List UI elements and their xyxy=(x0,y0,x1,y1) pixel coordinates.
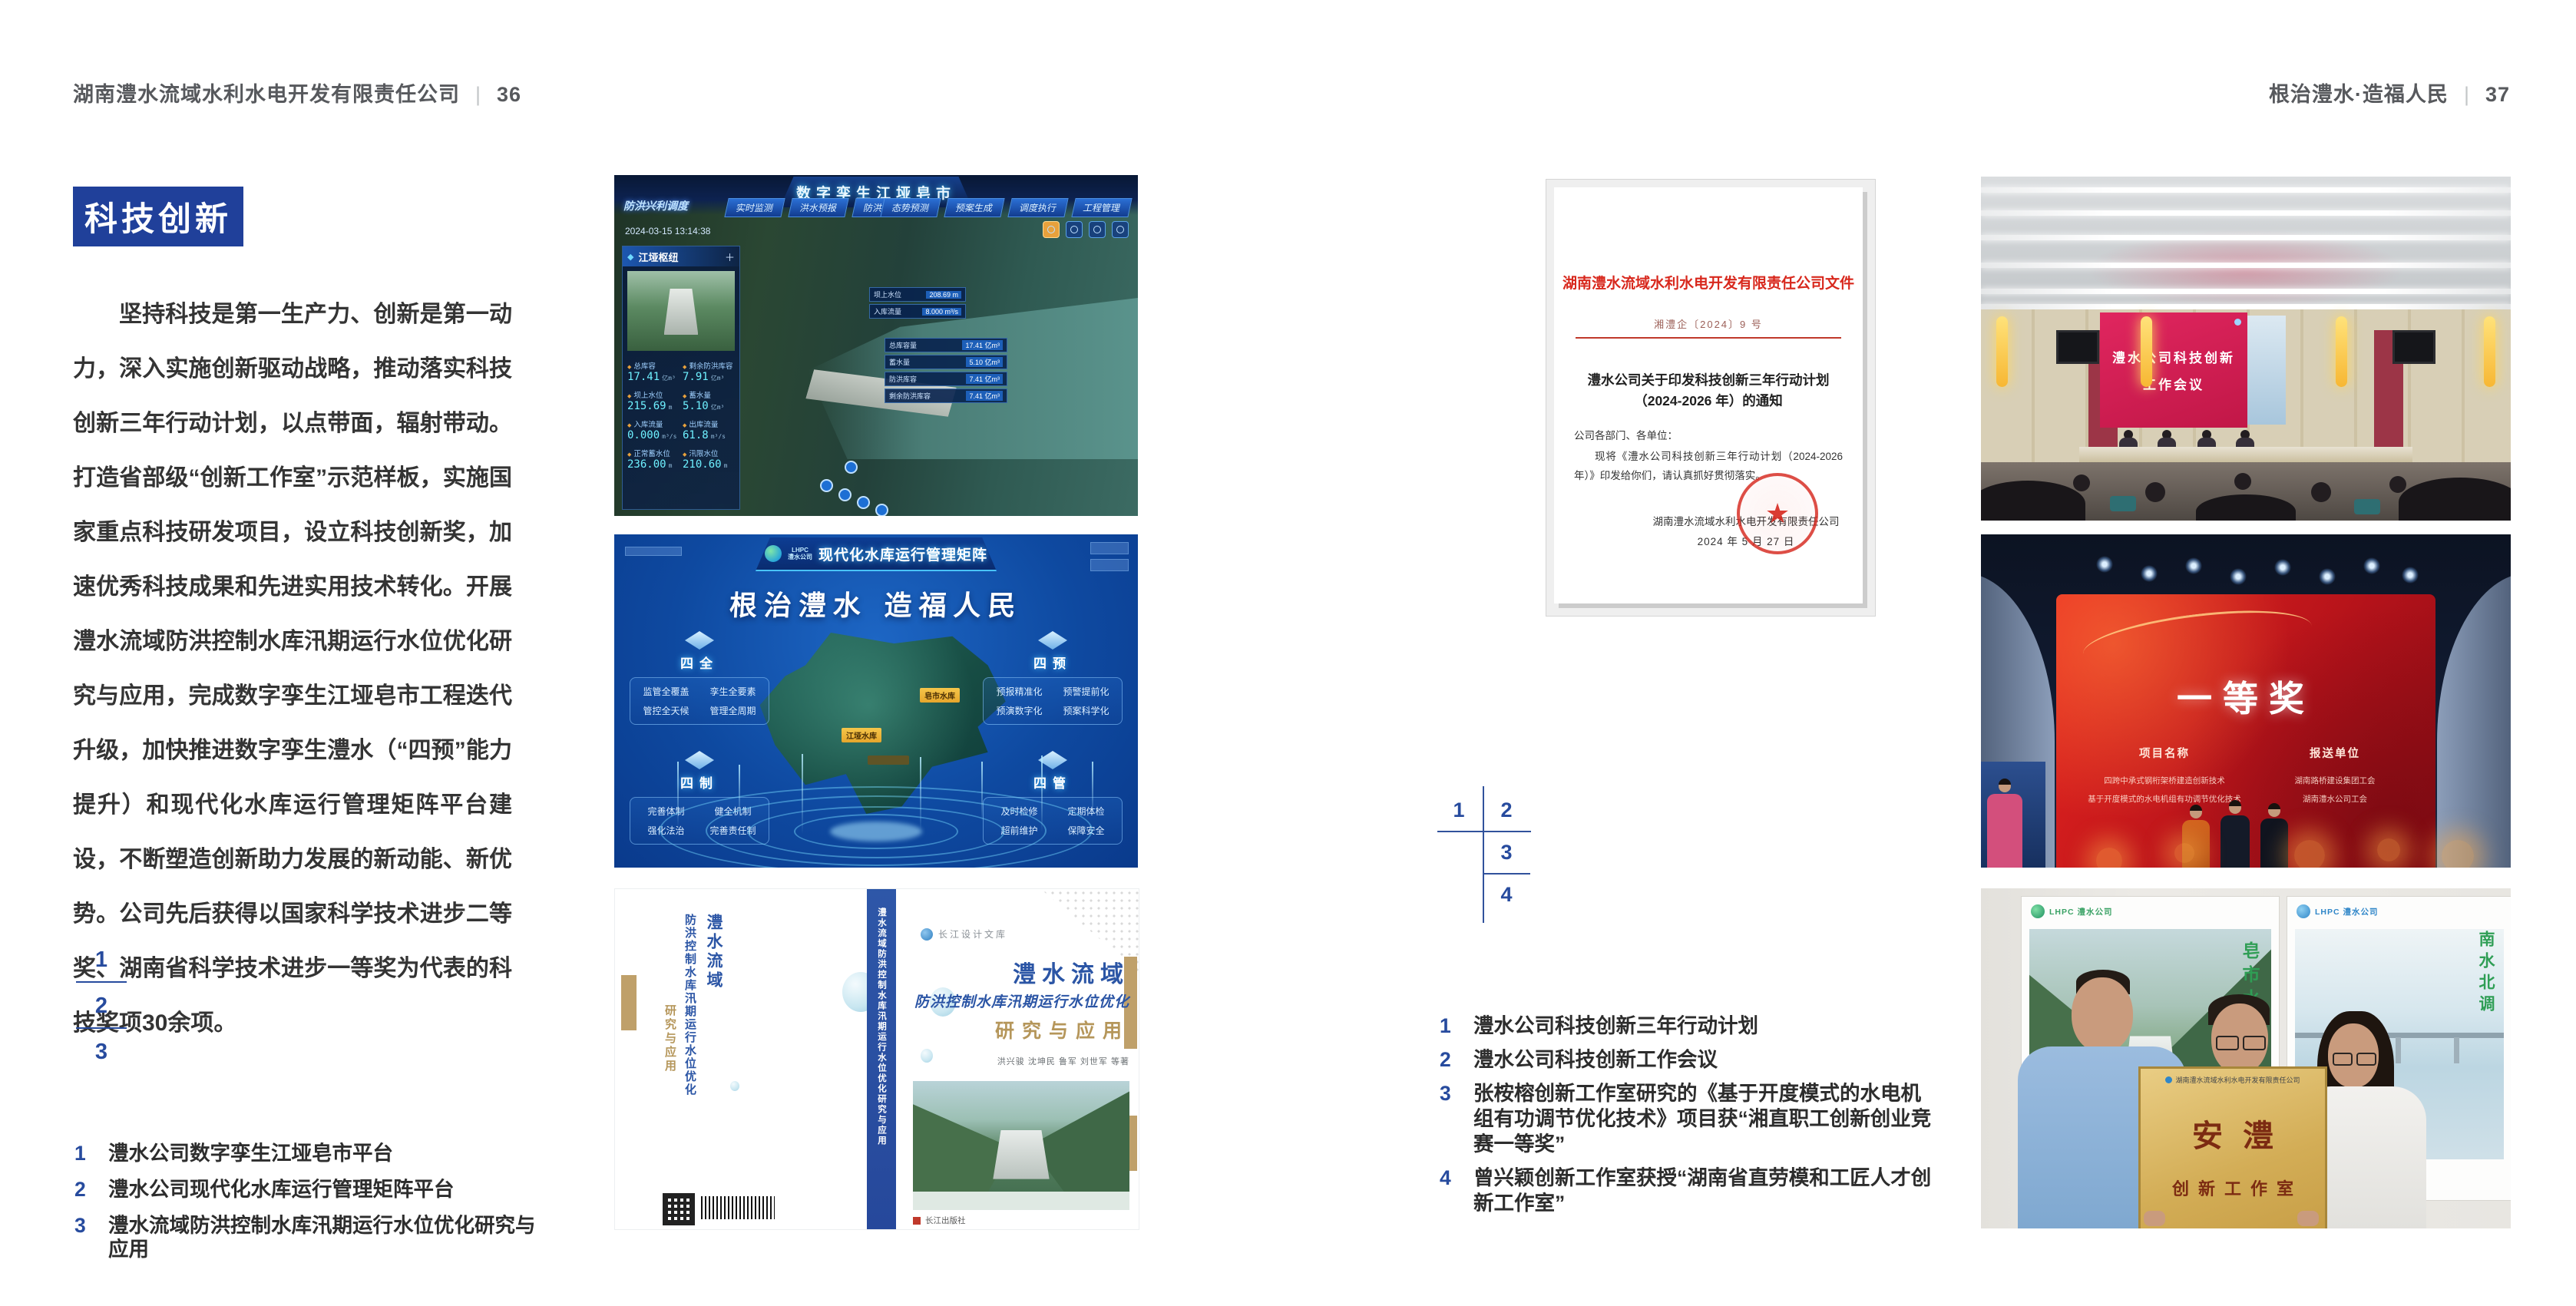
caption-number: 4 xyxy=(1440,1165,1473,1191)
book-title-line1: 澧水流域 xyxy=(901,955,1129,989)
left-page-number: 36 xyxy=(497,83,521,107)
left-caption-list: 1 澧水公司数字孪生江垭皂市平台 2 澧水公司现代化水库运行管理矩阵平台 3 澧… xyxy=(74,1142,551,1274)
stat-cell: 蓄水量5.10亿m³ xyxy=(683,389,735,412)
matrix-button-chip xyxy=(1090,542,1129,554)
caption-number: 1 xyxy=(1440,1013,1473,1039)
index-horizontal-line xyxy=(1483,873,1530,875)
lhpc-logo-icon xyxy=(765,545,782,562)
book-authors: 洪兴骏 沈坤民 鲁军 刘世军 等著 xyxy=(901,1055,1129,1067)
index-vertical-line xyxy=(1483,786,1484,923)
station-panel: ◆ 江垭枢纽 ＋ 总库容17.41亿m³ 剩余防洪库容7.91亿m³ 坝上水位2… xyxy=(622,246,740,510)
map-marker-icon xyxy=(857,496,870,509)
cube-icon xyxy=(685,751,714,769)
map-marker-icon xyxy=(820,479,833,492)
quadrant-siquan: 四全 监管全覆盖孪生全要素 管控全天候管理全周期 xyxy=(630,631,769,725)
cube-icon xyxy=(685,631,714,650)
matrix-button-chip xyxy=(1090,559,1129,571)
book-spine: 澧水流域防洪控制水库汛期运行水位优化研究与应用 xyxy=(867,889,896,1229)
figure-book-cover: 澧水流域 防洪控制水库汛期运行水位优化 研究与应用 澧水流域防洪控制水库汛期运行… xyxy=(614,888,1139,1230)
dashboard-mode-label: 防洪兴利调度 xyxy=(623,198,688,213)
caption-number: 2 xyxy=(74,1178,108,1202)
caption-text: 澧水公司数字孪生江垭皂市平台 xyxy=(108,1142,393,1165)
awardee-silhouette xyxy=(2260,805,2288,868)
chair-back xyxy=(2354,499,2380,514)
lhpc-logo-icon xyxy=(2297,904,2310,918)
stat-cell: 汛限水位210.60m xyxy=(683,448,735,471)
stat-cell: 总库容17.41亿m³ xyxy=(627,360,680,383)
meeting-ceiling xyxy=(1981,177,2511,309)
matrix-title: 现代化水库运行管理矩阵 xyxy=(818,544,987,564)
stat-cell: 正常蓄水位236.00m xyxy=(627,448,680,471)
dam-photo xyxy=(913,1081,1129,1210)
stage-light-icon xyxy=(2096,556,2113,573)
meeting-led-screen: 澧水公司科技创新 工作会议 xyxy=(2100,312,2247,428)
figure-number: 4 xyxy=(1494,883,1519,907)
audience-head xyxy=(2073,474,2090,491)
station-panel-header: ◆ 江垭枢纽 ＋ xyxy=(623,246,739,266)
figure-number: 2 xyxy=(1494,798,1519,822)
wall-tv xyxy=(2056,330,2099,364)
audience-head xyxy=(2311,482,2331,502)
light-pillar xyxy=(802,754,803,834)
index-divider xyxy=(76,1027,127,1029)
figure-official-document: 湖南澧水流域水利水电开发有限责任公司文件 湘澧企〔2024〕9 号 澧水公司关于… xyxy=(1546,179,1876,617)
right-running-head: 根治澧水·造福人民 | 37 xyxy=(2269,78,2510,107)
station-label-chip xyxy=(868,755,909,765)
right-page-number: 37 xyxy=(2485,83,2510,107)
figure-matrix-platform: LHPC澧水公司 现代化水库运行管理矩阵 根治澧水 造福人民 皂市水库 江垭水库… xyxy=(614,534,1138,868)
right-caption-list: 1 澧水公司科技创新三年行动计划 2 澧水公司科技创新工作会议 3 张桉榕创新工… xyxy=(1440,1013,1940,1225)
official-seal-icon: ★ xyxy=(1737,473,1818,554)
hand-shape xyxy=(2297,1211,2319,1226)
figure-group-photo: LHPC 澧水公司 皂市水库 LHPC 澧水公司 南水北调 xyxy=(1981,888,2511,1228)
map-marker-icon xyxy=(838,488,852,501)
water-droplet xyxy=(730,1081,739,1091)
map-popup: 总库容量17.41 亿m³ 蓄水量5.10 亿m³ 防洪库容7.41 亿m³ 剩… xyxy=(885,338,1007,405)
lhpc-logo: LHPC 澧水公司 xyxy=(2031,904,2113,918)
left-running-head: 湖南澧水流域水利水电开发有限责任公司 | 36 xyxy=(73,78,521,107)
light-pillar xyxy=(920,757,921,831)
quadrant-siyu: 四预 预报精准化预警提前化 预演数字化预案科学化 xyxy=(983,631,1123,725)
figure-number: 3 xyxy=(1494,841,1519,865)
book-title-line2: 防洪控制水库汛期运行水位优化 xyxy=(891,990,1129,1011)
caption-text: 澧水流域防洪控制水库汛期运行水位优化研究与应用 xyxy=(108,1214,551,1261)
index-horizontal-line xyxy=(1437,831,1531,832)
hand-shape xyxy=(2144,1211,2165,1226)
section-title: 科技创新 xyxy=(73,187,243,246)
index-divider xyxy=(76,981,127,983)
plaque-header: 湖南澧水流域水利水电开发有限责任公司 xyxy=(2141,1075,2325,1085)
lhpc-logo: LHPC 澧水公司 xyxy=(2297,904,2379,918)
station-name: 江垭枢纽 xyxy=(638,250,678,264)
plaque-logo-icon xyxy=(2165,1076,2172,1083)
figure-number: 3 xyxy=(76,1037,127,1067)
caption-number: 1 xyxy=(74,1142,108,1165)
audience-head xyxy=(2389,476,2406,493)
stage-light-icon xyxy=(2185,557,2202,574)
expand-icon: ＋ xyxy=(725,250,735,264)
stage-light-icon xyxy=(2363,557,2380,574)
caption-number: 3 xyxy=(74,1214,108,1238)
audience-head xyxy=(2234,473,2251,490)
stage-light-icon xyxy=(2141,565,2158,582)
stage-light-icon xyxy=(2402,567,2419,584)
stage-light-icon xyxy=(2230,568,2247,585)
stat-cell: 出库流量61.8m³/s xyxy=(683,418,735,441)
locate-icon xyxy=(1089,221,1106,238)
layers-icon xyxy=(1066,221,1083,238)
document-page: 湖南澧水流域水利水电开发有限责任公司文件 湘澧企〔2024〕9 号 澧水公司关于… xyxy=(1554,187,1863,603)
lhpc-logo-icon xyxy=(2031,904,2045,918)
wall-lamp-icon xyxy=(2141,316,2152,387)
map-popup: 坝上水位208.69 m 入库流量8.000 m³/s xyxy=(869,287,966,321)
bokeh-glow xyxy=(2442,840,2474,868)
dashboard-tabs-right: 态势预测 预案生成 调度执行 工程管理 xyxy=(882,198,1130,217)
stat-cell: 入库流量0.000m³/s xyxy=(627,418,680,441)
caption-row: 3 澧水流域防洪控制水库汛期运行水位优化研究与应用 xyxy=(74,1214,551,1261)
caption-row: 3 张桉榕创新工作室研究的《基于开度模式的水电机组有功调节优化技术》项目获“湘直… xyxy=(1440,1081,1940,1157)
tab: 态势预测 xyxy=(880,198,941,217)
right-header-slogan: 根治澧水·造福人民 xyxy=(2269,78,2449,107)
caption-number: 3 xyxy=(1440,1081,1473,1106)
awardee-silhouette xyxy=(2221,802,2250,868)
host-silhouette xyxy=(1987,780,2022,868)
figure-award-photo: 一等奖 项目名称 四跨中承式钢桁架桥建造创新技术 基于开度模式的水电机组有功调节… xyxy=(1981,534,2511,868)
light-pillar xyxy=(1041,755,1043,832)
stage-pillar xyxy=(2437,573,2511,868)
plaque-title: 安澧 xyxy=(2141,1111,2325,1156)
plaque-subtitle: 创新工作室 xyxy=(2141,1175,2325,1200)
reservoir-label: 皂市水库 xyxy=(920,688,960,703)
light-pillar xyxy=(739,765,740,818)
bokeh-glow xyxy=(2377,838,2400,861)
project-column: 项目名称 四跨中承式钢桁架桥建造创新技术 基于开度模式的水电机组有功调节优化技术 xyxy=(2079,745,2250,808)
caption-row: 1 澧水公司数字孪生江垭皂市平台 xyxy=(74,1142,551,1165)
series-logo: 长江设计文库 xyxy=(921,927,1007,941)
caption-row: 2 澧水公司科技创新工作会议 xyxy=(1440,1047,1940,1073)
left-header-company: 湖南澧水流域水利水电开发有限责任公司 xyxy=(73,78,460,107)
caption-text: 曾兴颖创新工作室获授“湖南省直劳模和工匠人才创新工作室” xyxy=(1473,1165,1940,1216)
rostrum-desk xyxy=(2079,447,2412,462)
ripple-core xyxy=(830,822,922,841)
person-face xyxy=(2072,977,2133,1053)
map-marker-icon xyxy=(845,461,858,474)
figure-digital-twin-platform: 数字孪生江垭皂市 防洪兴利调度 实时监测 洪水预报 防洪预演 态势预测 预案生成… xyxy=(614,175,1138,516)
settings-icon xyxy=(1112,221,1129,238)
document-salutation: 公司各部门、各单位： xyxy=(1574,427,1678,442)
cube-icon xyxy=(1038,631,1067,650)
figure-number: 1 xyxy=(1447,798,1471,822)
intro-paragraph: 坚持科技是第一生产力、创新是第一动力，深入实施创新驱动战略，推动落实科技创新三年… xyxy=(73,287,512,1050)
dam-thumbnail-shape xyxy=(664,289,699,335)
tab: 实时监测 xyxy=(724,198,785,217)
bokeh-glow xyxy=(2096,848,2122,868)
lhpc-logotype: LHPC澧水公司 xyxy=(788,547,812,560)
figure-number: 2 xyxy=(76,990,127,1021)
reservoir-label: 江垭水库 xyxy=(842,728,881,742)
caption-text: 张桉榕创新工作室研究的《基于开度模式的水电机组有功调节优化技术》项目获“湘直职工… xyxy=(1473,1081,1940,1157)
figure-meeting-photo: 澧水公司科技创新 工作会议 xyxy=(1981,177,2511,521)
document-masthead: 湖南澧水流域水利水电开发有限责任公司文件 xyxy=(1554,272,1863,293)
tan-accent-bar xyxy=(621,975,637,1030)
caption-text: 澧水公司科技创新三年行动计划 xyxy=(1473,1013,1758,1039)
caption-row: 1 澧水公司科技创新三年行动计划 xyxy=(1440,1013,1940,1039)
caption-row: 4 曾兴颖创新工作室获授“湖南省直劳模和工匠人才创新工作室” xyxy=(1440,1165,1940,1216)
map-marker-icon xyxy=(875,504,888,516)
tab: 预案生成 xyxy=(944,198,1004,217)
bokeh-glow xyxy=(2294,840,2325,868)
matrix-slogan: 根治澧水 造福人民 xyxy=(614,584,1138,623)
glasses-icon xyxy=(2216,1036,2266,1050)
wall-lamp-icon xyxy=(2484,316,2495,387)
projection-screen xyxy=(2247,316,2286,425)
light-streak xyxy=(2080,600,2315,679)
wall-lamp-icon xyxy=(2336,316,2347,387)
brochure-spread: 湖南澧水流域水利水电开发有限责任公司 | 36 根治澧水·造福人民 | 37 科… xyxy=(0,0,2576,1306)
light-pillar xyxy=(1092,762,1093,817)
back-cover-title: 澧水流域 防洪控制水库汛期运行水位优化 研究与应用 xyxy=(658,914,729,1167)
document-body: 现将《澧水公司科技创新三年行动计划（2024-2026 年）》印发给你们，请认真… xyxy=(1574,447,1843,485)
stage-light-icon xyxy=(2319,568,2336,585)
screen-logo-icon xyxy=(2234,319,2241,326)
document-number: 湘澧企〔2024〕9 号 xyxy=(1554,316,1863,331)
award-title: 一等奖 xyxy=(2056,671,2435,722)
station-thumbnail xyxy=(627,271,735,351)
caption-row: 2 澧水公司现代化水库运行管理矩阵平台 xyxy=(74,1178,551,1202)
poster-calligraphy: 南水北调 xyxy=(2475,931,2498,1017)
qr-code xyxy=(663,1193,695,1225)
workshop-plaque: 湖南澧水流域水利水电开发有限责任公司 安澧 创新工作室 xyxy=(2138,1066,2327,1228)
tab: 洪水预报 xyxy=(788,198,848,217)
caption-number: 2 xyxy=(1440,1047,1473,1073)
left-figure-index: 1 2 3 xyxy=(76,944,127,1067)
globe-icon xyxy=(921,928,933,941)
bokeh-glow xyxy=(2174,843,2194,863)
light-pillar xyxy=(677,762,679,828)
right-header-divider: | xyxy=(2464,83,2470,107)
publisher: 长江出版社 xyxy=(913,1215,966,1226)
barcode xyxy=(701,1196,775,1219)
unit-column: 报送单位 湖南路桥建设集团工会 湖南澧水公司工会 xyxy=(2250,745,2420,808)
alert-icon xyxy=(1043,221,1060,238)
document-red-rule xyxy=(1576,337,1841,339)
matrix-header: LHPC澧水公司 现代化水库运行管理矩阵 xyxy=(756,537,997,571)
book-title-line3: 研究与应用 xyxy=(901,1016,1129,1043)
anchor-icon: ◆ xyxy=(627,252,633,262)
caption-text: 澧水公司现代化水库运行管理矩阵平台 xyxy=(108,1178,455,1202)
wall-lamp-icon xyxy=(1996,316,2008,387)
figure-number: 1 xyxy=(76,944,127,975)
caption-text: 澧水公司科技创新工作会议 xyxy=(1473,1047,1718,1073)
dam-face xyxy=(993,1130,1049,1179)
wall-tv xyxy=(2392,330,2435,364)
glasses-icon xyxy=(2333,1053,2376,1066)
light-pillar xyxy=(981,762,983,822)
stat-cell: 剩余防洪库容7.91亿m³ xyxy=(683,360,735,383)
stage-light-icon xyxy=(2274,559,2291,576)
chair-back xyxy=(2110,496,2136,511)
stat-cell: 坝上水位215.69m xyxy=(627,389,680,412)
station-stats: 总库容17.41亿m³ 剩余防洪库容7.91亿m³ 坝上水位215.69m 蓄水… xyxy=(623,355,739,475)
audience-head xyxy=(2145,482,2165,502)
dashboard-timestamp: 2024-03-15 13:14:38 xyxy=(625,226,710,236)
dashboard-toolbar xyxy=(1043,221,1129,238)
document-title: 澧水公司关于印发科技创新三年行动计划 （2024-2026 年）的通知 xyxy=(1554,370,1863,412)
left-header-divider: | xyxy=(475,83,481,107)
tab: 调度执行 xyxy=(1007,198,1068,217)
tab: 工程管理 xyxy=(1071,198,1132,217)
matrix-timestamp-bar xyxy=(625,547,682,556)
publisher-mark-icon xyxy=(913,1217,921,1225)
